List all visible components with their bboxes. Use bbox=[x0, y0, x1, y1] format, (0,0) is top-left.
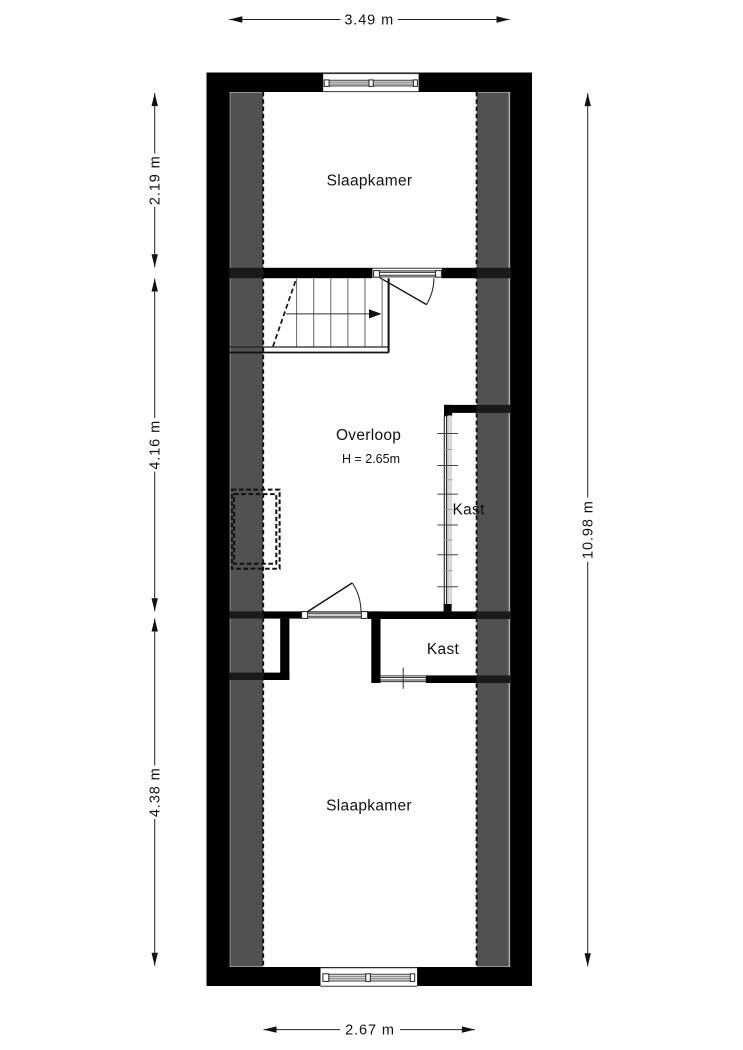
svg-text:4.38 m: 4.38 m bbox=[147, 767, 163, 817]
svg-text:4.16 m: 4.16 m bbox=[148, 420, 164, 470]
svg-text:Overloop: Overloop bbox=[336, 427, 401, 444]
svg-text:H = 2.65m: H = 2.65m bbox=[342, 452, 400, 466]
svg-text:10.98 m: 10.98 m bbox=[581, 500, 597, 559]
svg-text:2.19 m: 2.19 m bbox=[148, 155, 164, 205]
svg-text:Slaapkamer: Slaapkamer bbox=[327, 172, 413, 189]
svg-text:Slaapkamer: Slaapkamer bbox=[326, 797, 412, 814]
svg-text:3.49 m: 3.49 m bbox=[344, 12, 394, 28]
svg-text:2.67 m: 2.67 m bbox=[345, 1022, 395, 1038]
svg-text:Kast: Kast bbox=[452, 501, 485, 518]
svg-text:Kast: Kast bbox=[427, 641, 460, 658]
